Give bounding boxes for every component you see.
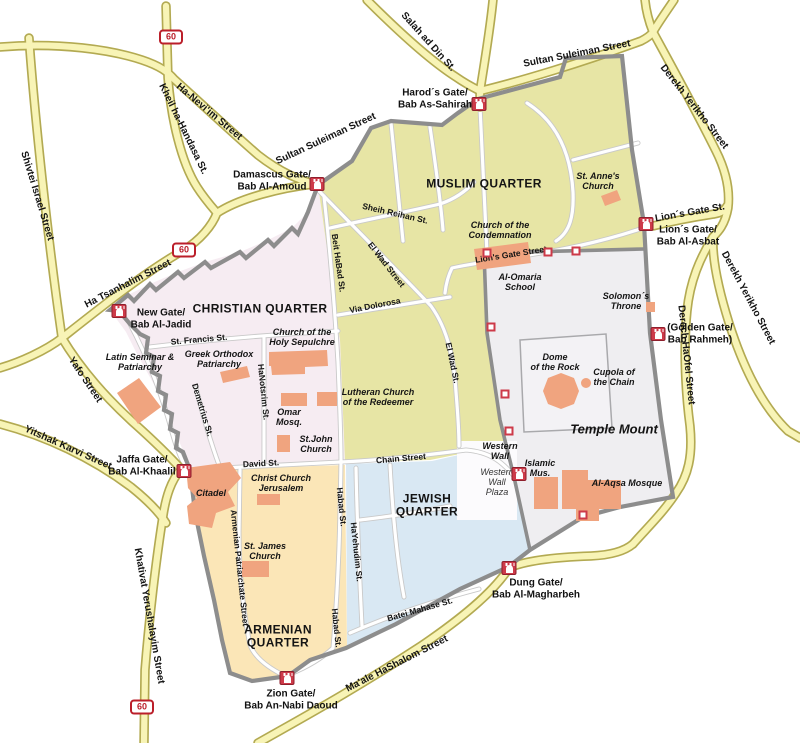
building-islamic-museum	[534, 477, 558, 509]
wall-gate-marker-4	[487, 323, 496, 332]
building-solomons-throne	[646, 302, 655, 312]
building-cupola-of-the-chain	[581, 378, 591, 388]
new-gate-icon	[112, 304, 127, 318]
zion-gate-icon	[280, 671, 295, 685]
building-st-james	[242, 561, 269, 577]
zion-gate-label: Zion Gate/ Bab An-Nabi Daoud	[244, 689, 338, 712]
harods-gate-label: Harod´s Gate/ Bab As-Sahirah	[398, 88, 472, 111]
route-60-shield-3: 60	[130, 700, 154, 715]
harods-gate-icon	[472, 97, 487, 111]
golden-gate-label: (Golden Gate/ Bab Rahmeh)	[667, 323, 733, 346]
wall-gate-marker-3	[572, 247, 581, 256]
wall-gate-marker-2	[544, 248, 553, 257]
dung-gate-icon	[502, 561, 517, 575]
route-60-shield-2: 60	[172, 243, 196, 258]
gate-door	[314, 181, 321, 189]
gate-door	[181, 468, 188, 476]
wall-gate-marker-7	[579, 511, 588, 520]
building-omar-mosque	[281, 393, 307, 406]
gate-door	[516, 471, 523, 479]
golden-gate-icon	[651, 327, 666, 341]
islamic-museum-gate-icon	[512, 467, 527, 481]
lions-gate-icon	[639, 217, 654, 231]
damascus-gate-label: Damascus Gate/ Bab Al-Amoud	[233, 170, 311, 193]
building-christ-church	[257, 494, 280, 505]
damascus-gate-icon	[310, 177, 325, 191]
jerusalem-old-city-map: MUSLIM QUARTERCHRISTIAN QUARTERJEWISH QU…	[0, 0, 800, 743]
wall-gate-marker-6	[505, 427, 514, 436]
gate-door	[643, 221, 650, 229]
building-dome-of-the-rock	[543, 373, 579, 409]
building-st-john	[277, 435, 290, 452]
dung-gate-label: Dung Gate/ Bab Al-Magharbeh	[492, 578, 580, 601]
gate-door	[506, 565, 513, 573]
wall-gate-marker-1	[483, 249, 492, 258]
wall-gate-marker-5	[501, 390, 510, 399]
jaffa-gate-icon	[177, 464, 192, 478]
gate-door	[284, 675, 291, 683]
gate-door	[655, 331, 662, 339]
route-60-shield-1: 60	[159, 30, 183, 45]
jaffa-gate-label: Jaffa Gate/ Bab Al-Khaalil	[108, 455, 175, 478]
new-gate-label: New Gate/ Bab Al-Jadid	[131, 308, 192, 331]
lions-gate-label: Lion´s Gate/ Bab Al-Asbat	[657, 225, 719, 248]
gate-door	[476, 101, 483, 109]
building-lutheran	[317, 392, 337, 406]
gate-door	[116, 308, 123, 316]
map-base	[0, 0, 800, 743]
